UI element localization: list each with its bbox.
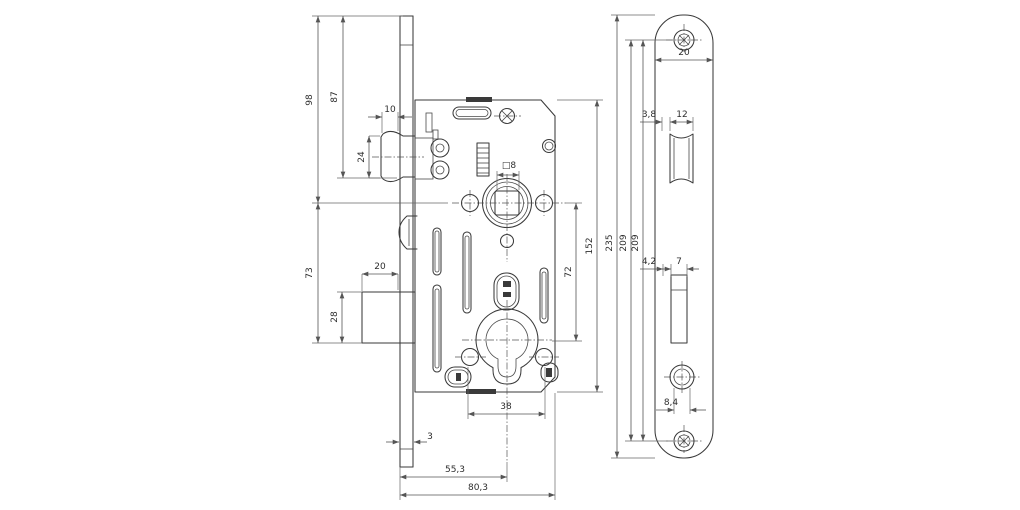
- top-screw-hole: [494, 109, 521, 124]
- faceplate-bottom-screw: [666, 425, 702, 453]
- dim-label-235: 235: [605, 234, 615, 251]
- dim-label-20-throw: 20: [374, 262, 386, 272]
- dim-label-20-plate: 20: [678, 48, 690, 58]
- dim-label-38: 38: [500, 402, 512, 412]
- dim-label-80-3: 80,3: [468, 483, 488, 493]
- dim-label-28: 28: [330, 311, 340, 323]
- dim-label-209-a: 209: [619, 234, 629, 251]
- auxiliary-latch: [399, 216, 417, 249]
- dim-label-3: 3: [427, 432, 433, 442]
- drawing-canvas: 98 87 10 24 73 20 28 3 55: [0, 0, 1020, 510]
- dim-label-8-4: 8,4: [664, 398, 679, 408]
- latch-spring-retainers: [426, 113, 438, 139]
- dim-label-73: 73: [305, 267, 315, 278]
- bottom-left-slot: [445, 367, 471, 387]
- dim-label-209-b: 209: [631, 234, 641, 251]
- dim-label-7: 7: [676, 257, 682, 267]
- faceplate-front-view: [655, 15, 713, 458]
- lock-drawing-svg: 98 87 10 24 73 20 28 3 55: [0, 0, 1020, 510]
- dim-label-10: 10: [384, 105, 396, 115]
- dim-label-square-8: □8: [502, 161, 517, 171]
- cylinder-top-slot: [494, 273, 519, 310]
- top-slot: [453, 107, 491, 119]
- bottom-fixing-lug: [466, 389, 496, 394]
- guide-slots: [433, 228, 548, 372]
- faceplate-latch-cutout: [670, 134, 693, 183]
- faceplate-side-view: [400, 16, 413, 467]
- dim-label-4-2: 4,2: [642, 257, 656, 267]
- dim-label-152: 152: [585, 237, 595, 254]
- faceplate-cylinder-hole: [664, 361, 700, 393]
- faceplate-deadbolt-slot: [671, 275, 687, 343]
- dim-label-98: 98: [305, 94, 315, 106]
- dim-label-72: 72: [564, 266, 574, 277]
- dim-label-24: 24: [357, 151, 367, 163]
- dim-label-3-8: 3,8: [642, 110, 657, 120]
- right-guide-hole: [543, 140, 556, 153]
- dim-label-55-3: 55,3: [445, 465, 465, 475]
- dimensions: 98 87 10 24 73 20 28 3 55: [305, 15, 713, 500]
- dim-label-12: 12: [676, 110, 687, 120]
- latch-bolt: [372, 131, 449, 181]
- deadbolt: [362, 292, 415, 343]
- dim-label-87: 87: [330, 91, 340, 102]
- coil-spring: [477, 143, 489, 176]
- top-fixing-lug: [466, 97, 492, 102]
